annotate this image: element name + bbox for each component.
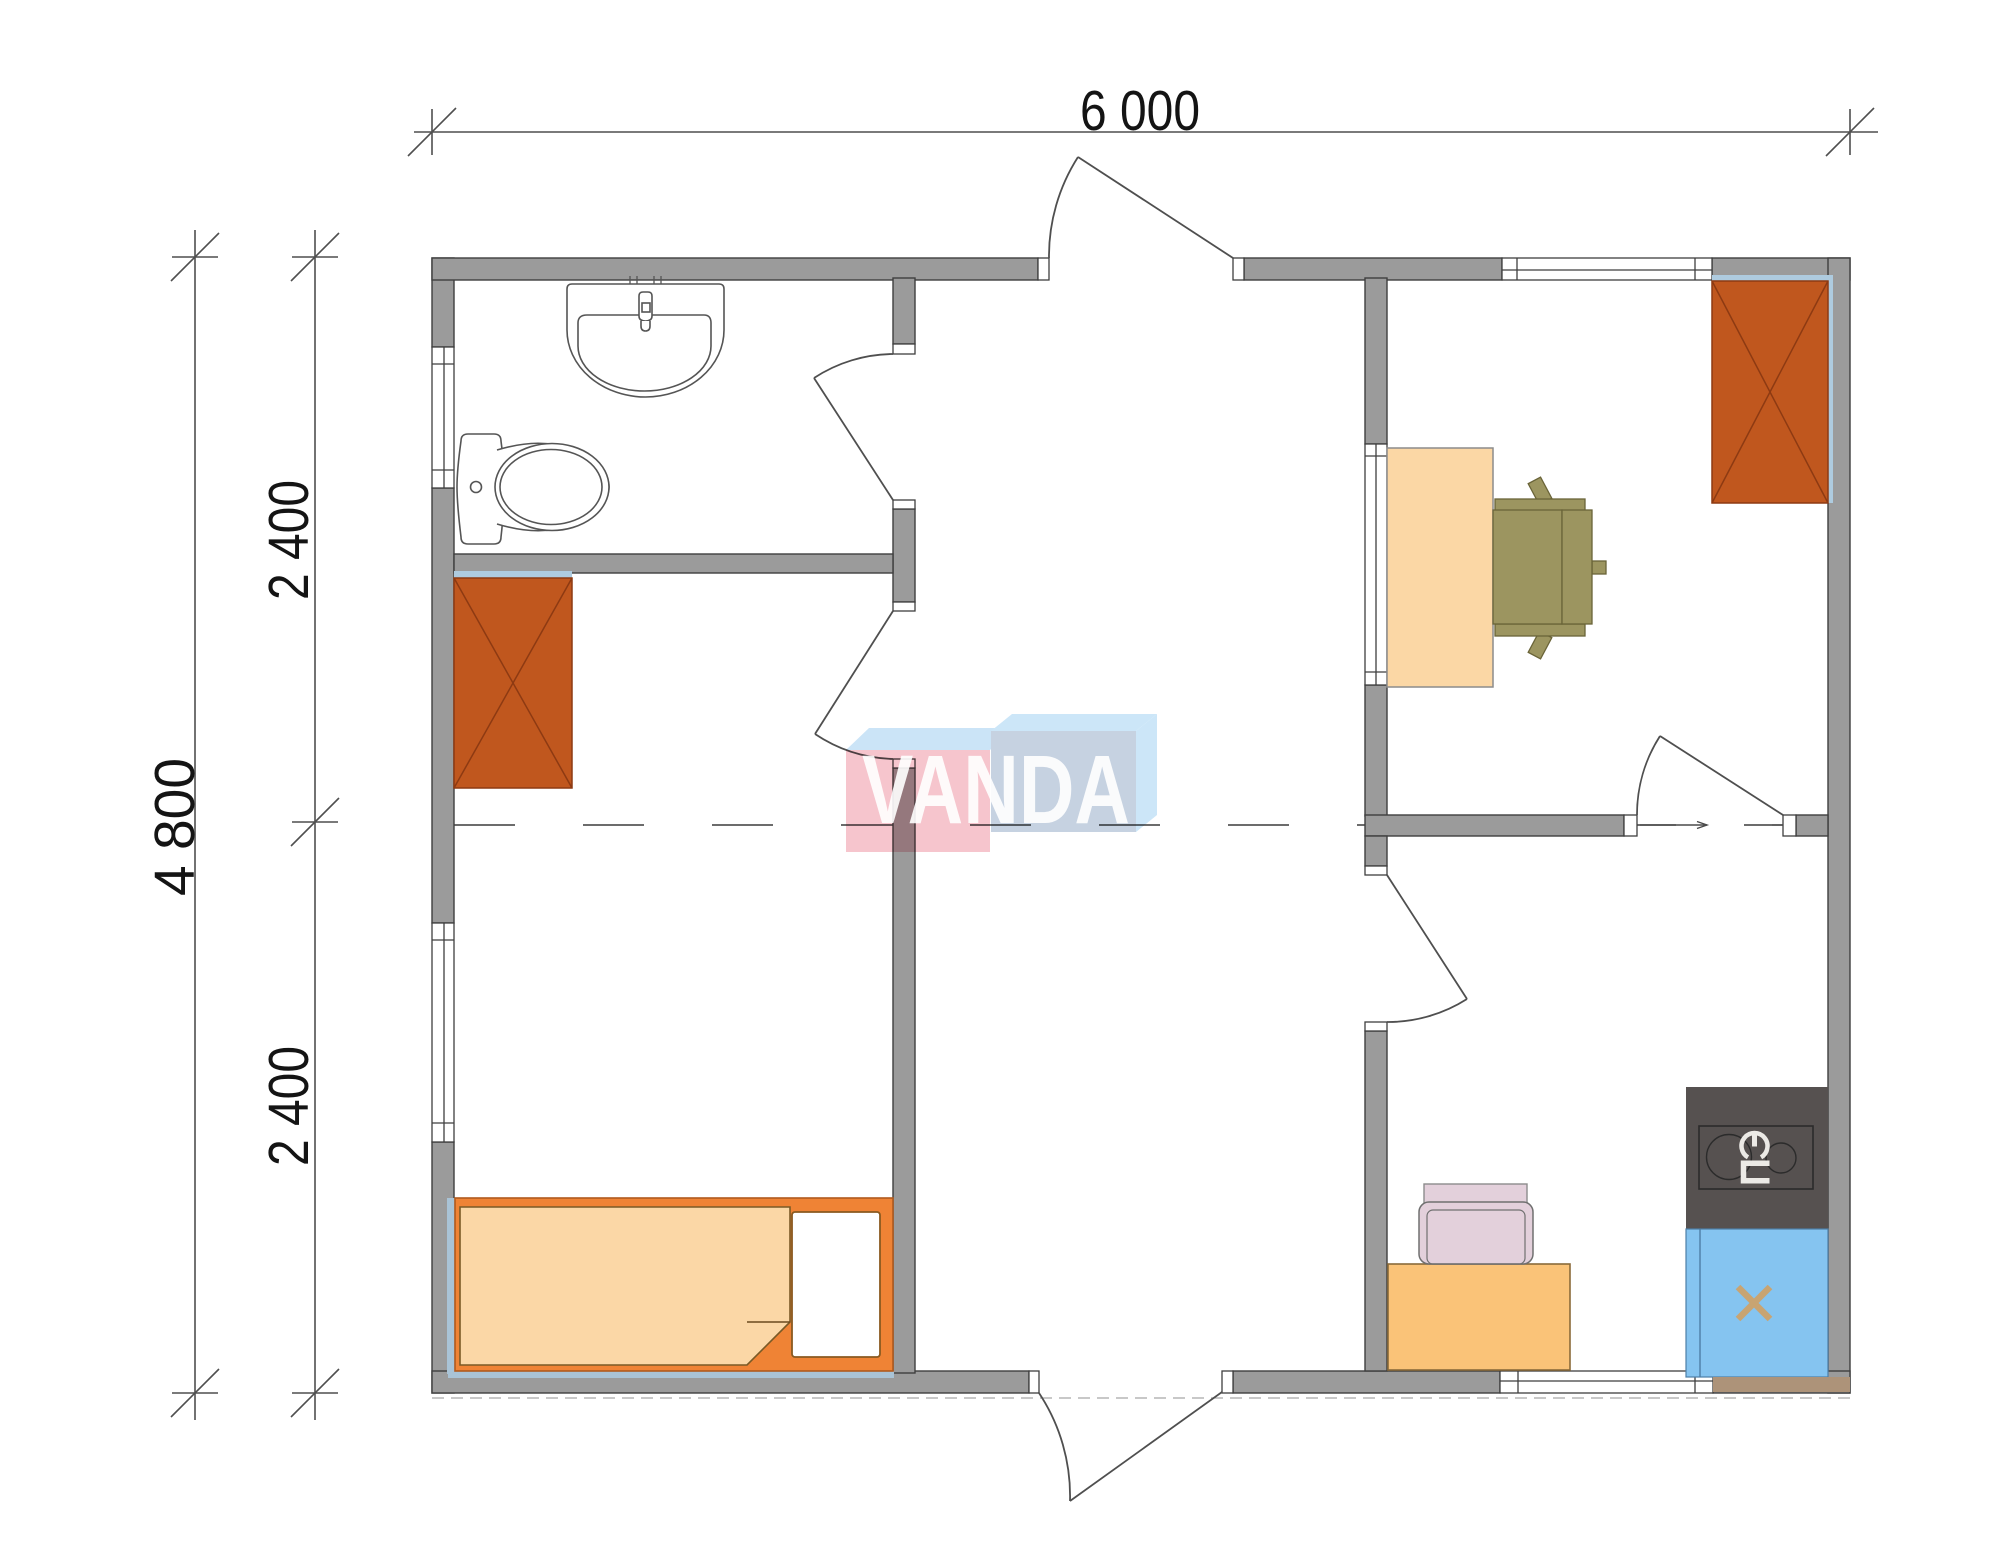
svg-text:2 400: 2 400 <box>257 480 321 600</box>
svg-text:VANDA: VANDA <box>862 735 1130 844</box>
svg-text:2 400: 2 400 <box>257 1046 321 1166</box>
svg-text:4 800: 4 800 <box>143 758 207 896</box>
svg-text:6 000: 6 000 <box>1080 79 1200 143</box>
